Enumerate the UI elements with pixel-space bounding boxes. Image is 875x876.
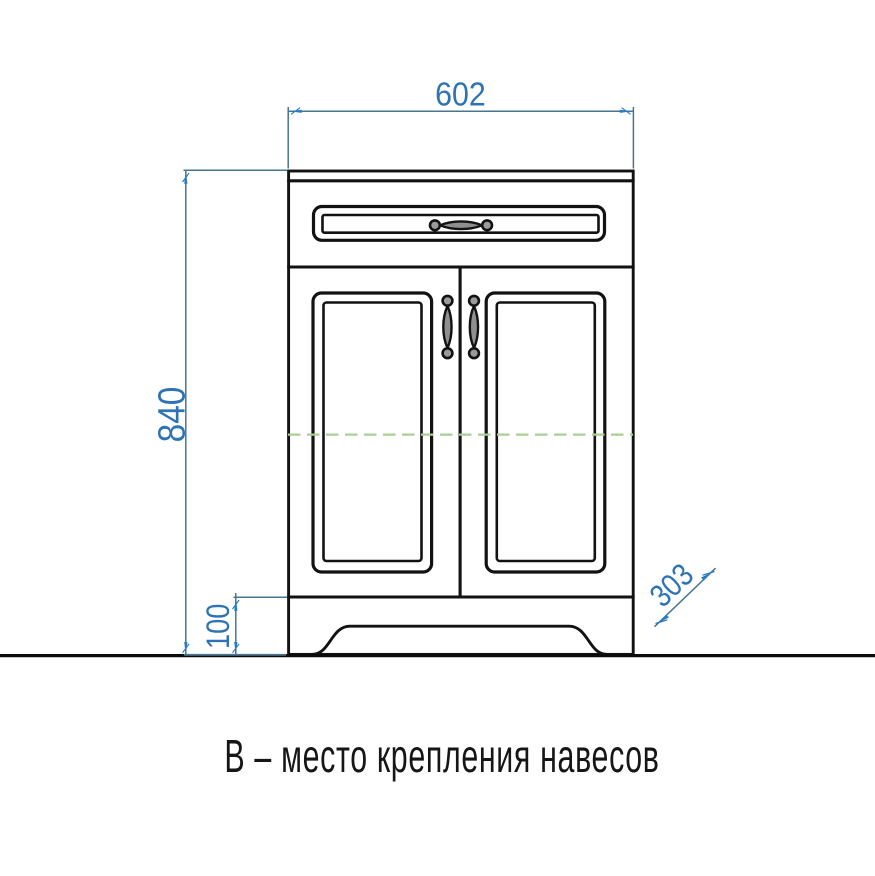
svg-text:303: 303 [643, 557, 700, 614]
svg-text:602: 602 [435, 75, 486, 112]
svg-text:В – место крепления навесов: В – место крепления навесов [224, 732, 659, 783]
svg-text:100: 100 [201, 604, 237, 649]
svg-text:840: 840 [151, 387, 193, 443]
